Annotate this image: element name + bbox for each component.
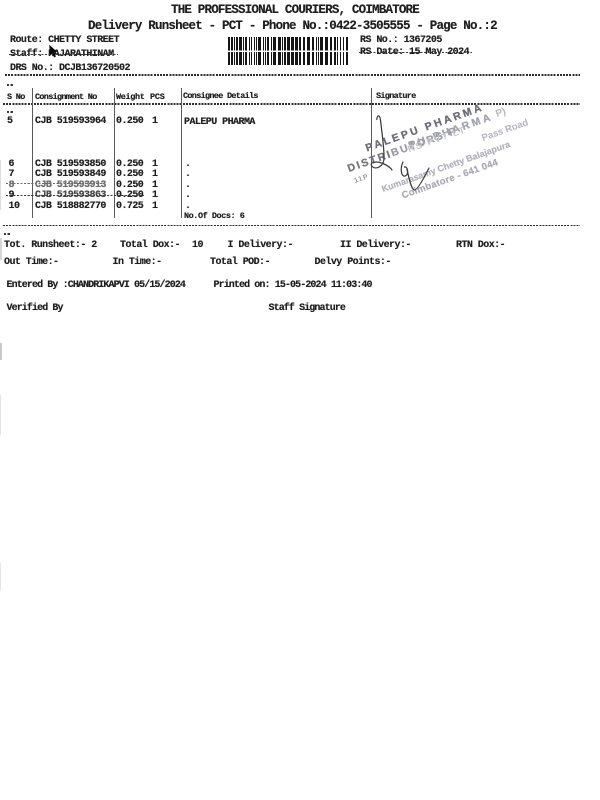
svg-text:11P: 11P (353, 173, 370, 185)
svg-text:P): P) (494, 106, 507, 120)
